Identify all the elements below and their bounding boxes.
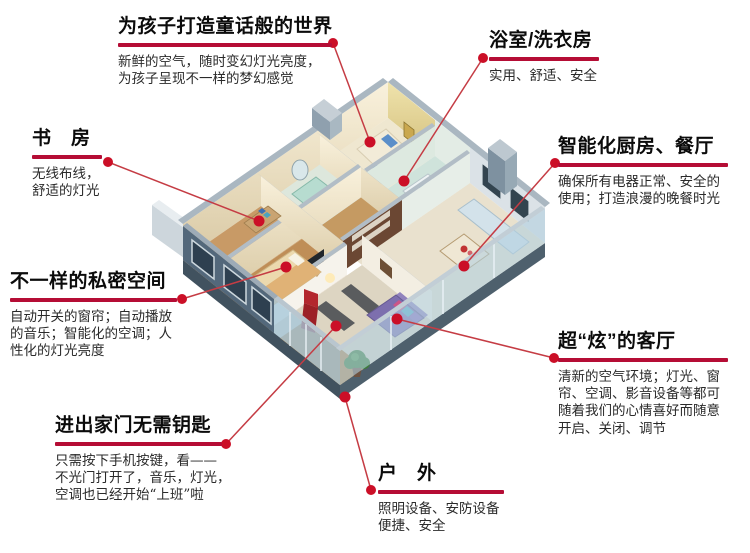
callout-end-dot [366,485,376,495]
room-marker-dot [331,321,342,332]
callout-description: 自动开关的窗帘；自动播放 的音乐；智能化的空调；人 性化的灯光亮度 [10,309,188,361]
callout-title: 超“炫”的客厅 [558,331,736,353]
connector-line-outdoor [345,397,371,490]
room-marker-dot [365,137,376,148]
callout-description: 清新的空气环境；灯光、窗 帘、空调、影音设备等都可 随着我们的心情喜好而随意 开… [558,369,736,438]
callout-cool-living-room: 超“炫”的客厅 清新的空气环境；灯光、窗 帘、空调、影音设备等都可 随着我们的心… [558,331,736,438]
callout-underline [558,163,728,167]
callout-bathroom-laundry: 浴室/洗衣房 实用、舒适、安全 [489,30,659,85]
callout-description: 无线布线， 舒适的灯光 [32,166,142,201]
callout-underline [378,490,504,494]
callout-smart-kitchen-dining: 智能化厨房、餐厅 确保所有电器正常、安全的 使用；打造浪漫的晚餐时光 [558,136,736,208]
room-marker-dot [254,216,265,227]
callout-study-room: 书 房 无线布线， 舒适的灯光 [32,128,142,200]
callout-children-room: 为孩子打造童话般的世界 新鲜的空气，随时变幻灯光亮度， 为孩子呈现不一样的梦幻感… [118,16,378,88]
callout-title: 为孩子打造童话般的世界 [118,16,378,38]
callout-outdoor: 户 外 照明设备、安防设备 便捷、安全 [378,463,538,535]
callout-title: 户 外 [378,463,538,485]
room-marker-dot [399,176,410,187]
callout-title: 浴室/洗衣房 [489,30,659,52]
callout-underline [10,298,177,302]
room-marker-dot [281,262,292,273]
callout-underline [558,358,728,362]
callout-underline [32,155,102,159]
callout-description: 照明设备、安防设备 便捷、安全 [378,501,538,536]
callout-description: 新鲜的空气，随时变幻灯光亮度， 为孩子呈现不一样的梦幻感觉 [118,54,378,89]
callout-underline [489,57,599,61]
callout-title: 书 房 [32,128,142,150]
room-marker-dot [392,314,403,325]
callout-keyless-entry: 进出家门无需钥匙 只需按下手机按键，看—— 不光门打开了，音乐，灯光， 空调也已… [55,415,250,505]
callout-description: 确保所有电器正常、安全的 使用；打造浪漫的晚餐时光 [558,174,736,209]
house-3d-render [152,78,550,399]
callout-title: 智能化厨房、餐厅 [558,136,736,158]
callout-underline [55,442,222,446]
callout-underline [118,43,332,47]
callout-description: 实用、舒适、安全 [489,68,659,85]
callout-title: 进出家门无需钥匙 [55,415,250,437]
room-marker-dot [459,261,470,272]
poster-canvas: 为孩子打造童话般的世界 新鲜的空气，随时变幻灯光亮度， 为孩子呈现不一样的梦幻感… [0,0,750,553]
callout-end-dot [478,53,488,63]
room-marker-dot [340,392,351,403]
callout-title: 不一样的私密空间 [10,271,188,293]
callout-description: 只需按下手机按键，看—— 不光门打开了，音乐，灯光， 空调也已经开始“上班”啦 [55,453,250,505]
callout-private-space: 不一样的私密空间 自动开关的窗帘；自动播放 的音乐；智能化的空调；人 性化的灯光… [10,271,188,361]
